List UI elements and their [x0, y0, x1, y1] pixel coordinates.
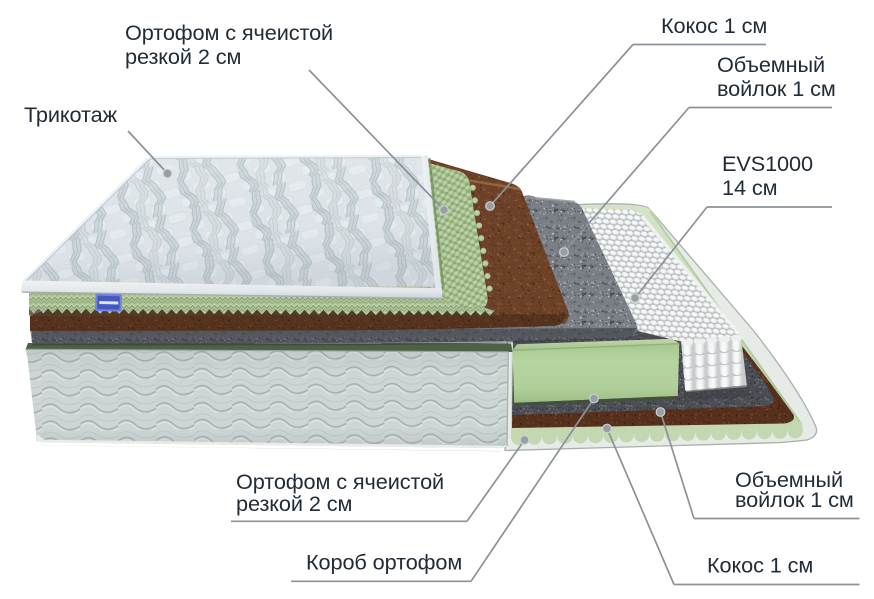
svg-text:Трикотаж: Трикотаж: [24, 102, 118, 127]
svg-text:Кокос 1 см: Кокос 1 см: [661, 13, 767, 38]
svg-text:EVS1000: EVS1000: [722, 151, 813, 176]
svg-text:14 см: 14 см: [722, 175, 777, 200]
svg-text:войлок 1 см: войлок 1 см: [717, 76, 836, 101]
svg-text:Короб ортофом: Короб ортофом: [306, 550, 462, 575]
svg-text:войлок 1 см: войлок 1 см: [735, 487, 854, 512]
svg-text:резкой 2 см: резкой 2 см: [125, 44, 241, 69]
svg-text:Ортофом с ячеистой: Ортофом с ячеистой: [125, 20, 333, 45]
svg-text:Кокос 1 см: Кокос 1 см: [707, 553, 813, 578]
svg-text:Объемный: Объемный: [717, 52, 825, 77]
svg-text:резкой 2 см: резкой 2 см: [236, 491, 352, 516]
